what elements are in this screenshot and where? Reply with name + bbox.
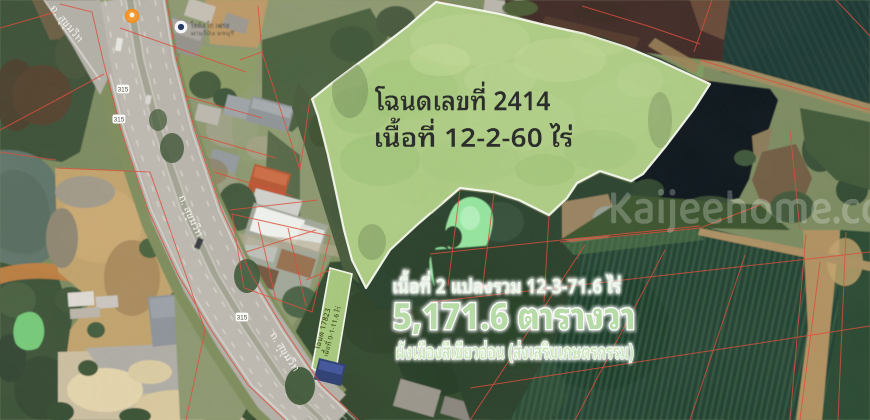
svg-text:315: 315 xyxy=(237,314,248,321)
svg-text:315: 315 xyxy=(114,116,125,123)
svg-text:315: 315 xyxy=(118,86,129,93)
